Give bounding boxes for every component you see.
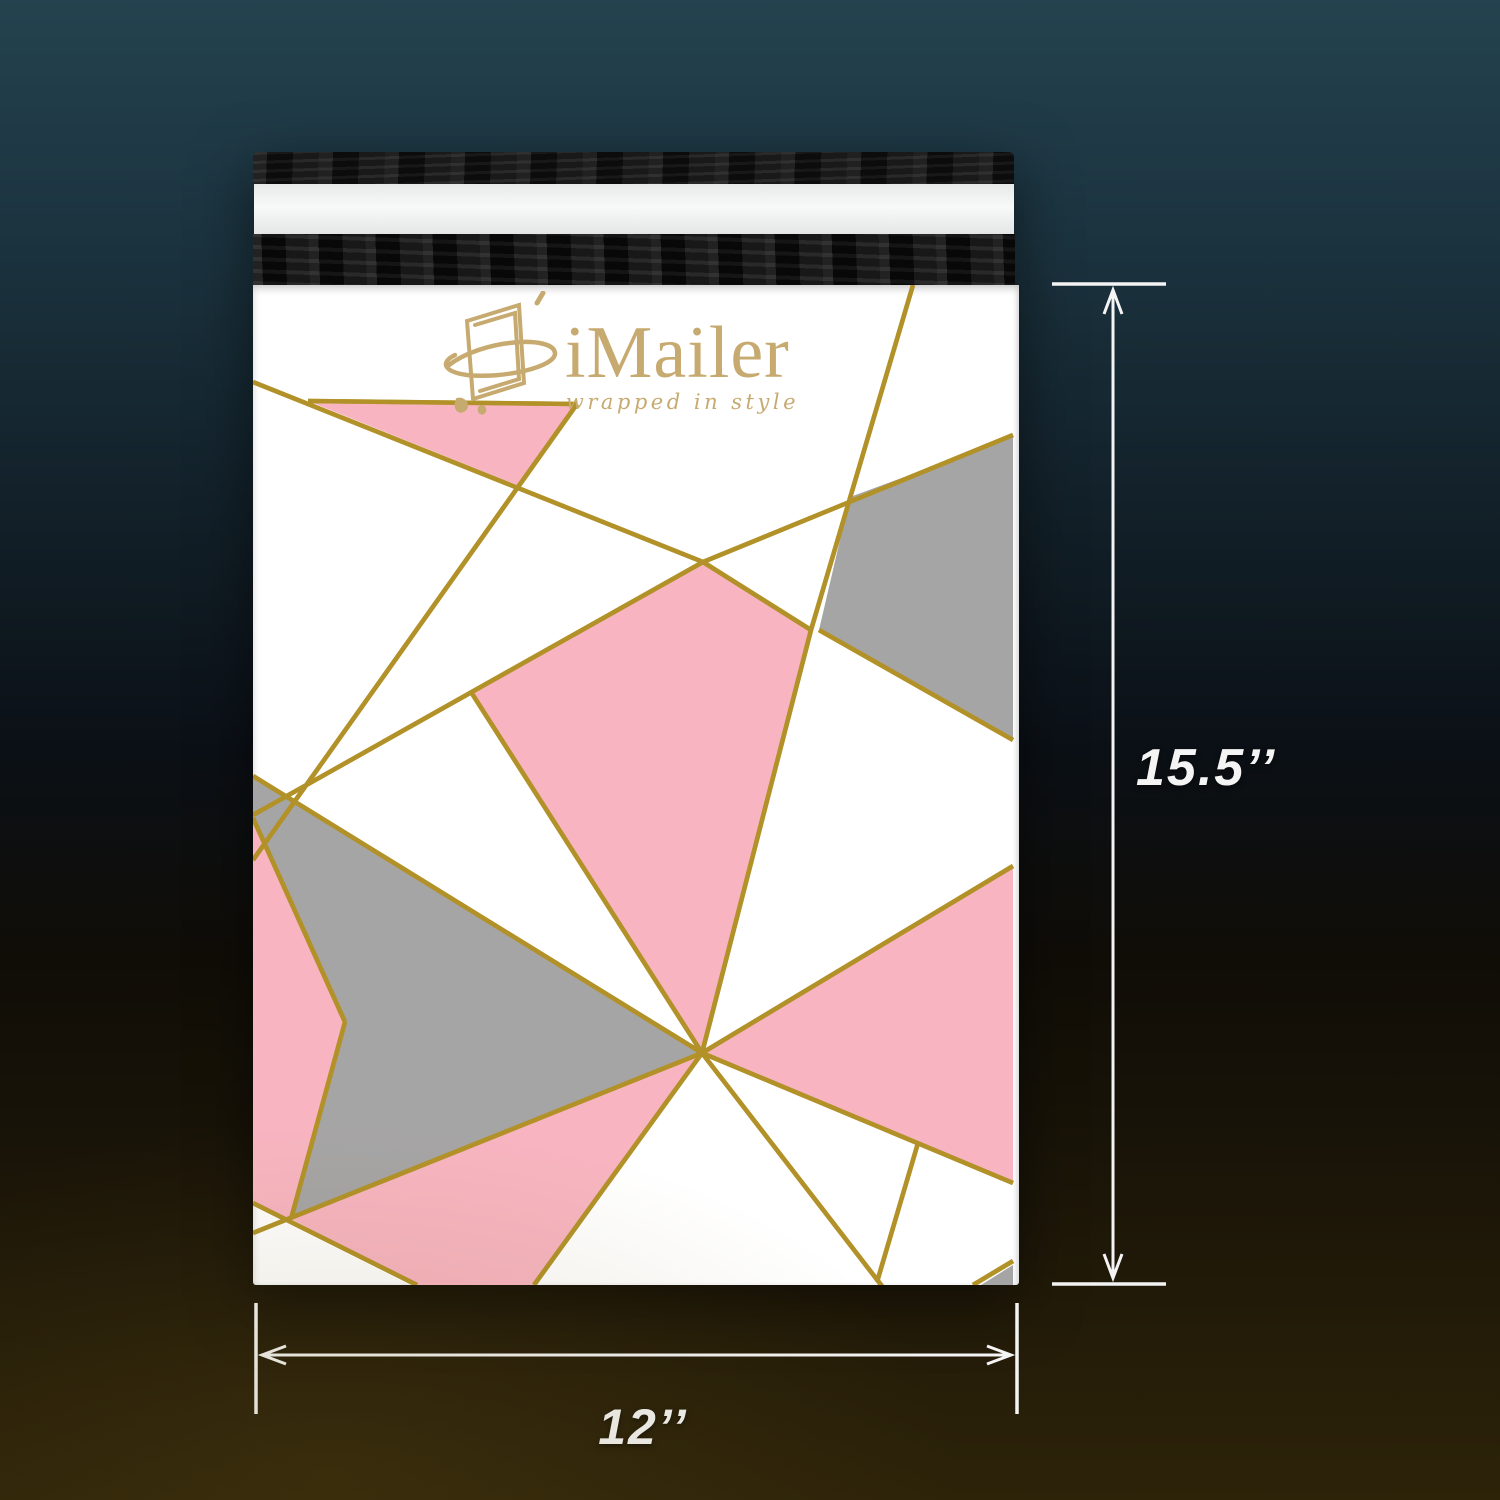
brand-tagline: wrapped in style	[566, 390, 799, 414]
poly-mailer: iMailer wrapped in style	[253, 152, 1019, 1285]
geometric-pattern	[253, 285, 1019, 1285]
arrow-up-icon	[1104, 290, 1122, 314]
arrow-right-icon	[987, 1346, 1011, 1364]
brand-name: iMailer	[565, 312, 790, 394]
book-swoosh-icon	[446, 293, 555, 414]
pattern-gray-wedge-right	[819, 437, 1013, 740]
height-label: 15.5’’	[1136, 738, 1276, 798]
product-shot-background: iMailer wrapped in style	[0, 0, 1500, 1500]
adhesive-strip	[253, 234, 1015, 285]
brand-logo: iMailer wrapped in style	[253, 291, 1019, 431]
mailer-flap	[253, 152, 1014, 184]
width-label: 12’’	[558, 1398, 728, 1456]
mailer-body: iMailer wrapped in style	[253, 285, 1019, 1285]
release-liner-strip	[254, 184, 1014, 234]
arrow-down-icon	[1104, 1254, 1122, 1278]
arrow-left-icon	[262, 1346, 286, 1364]
